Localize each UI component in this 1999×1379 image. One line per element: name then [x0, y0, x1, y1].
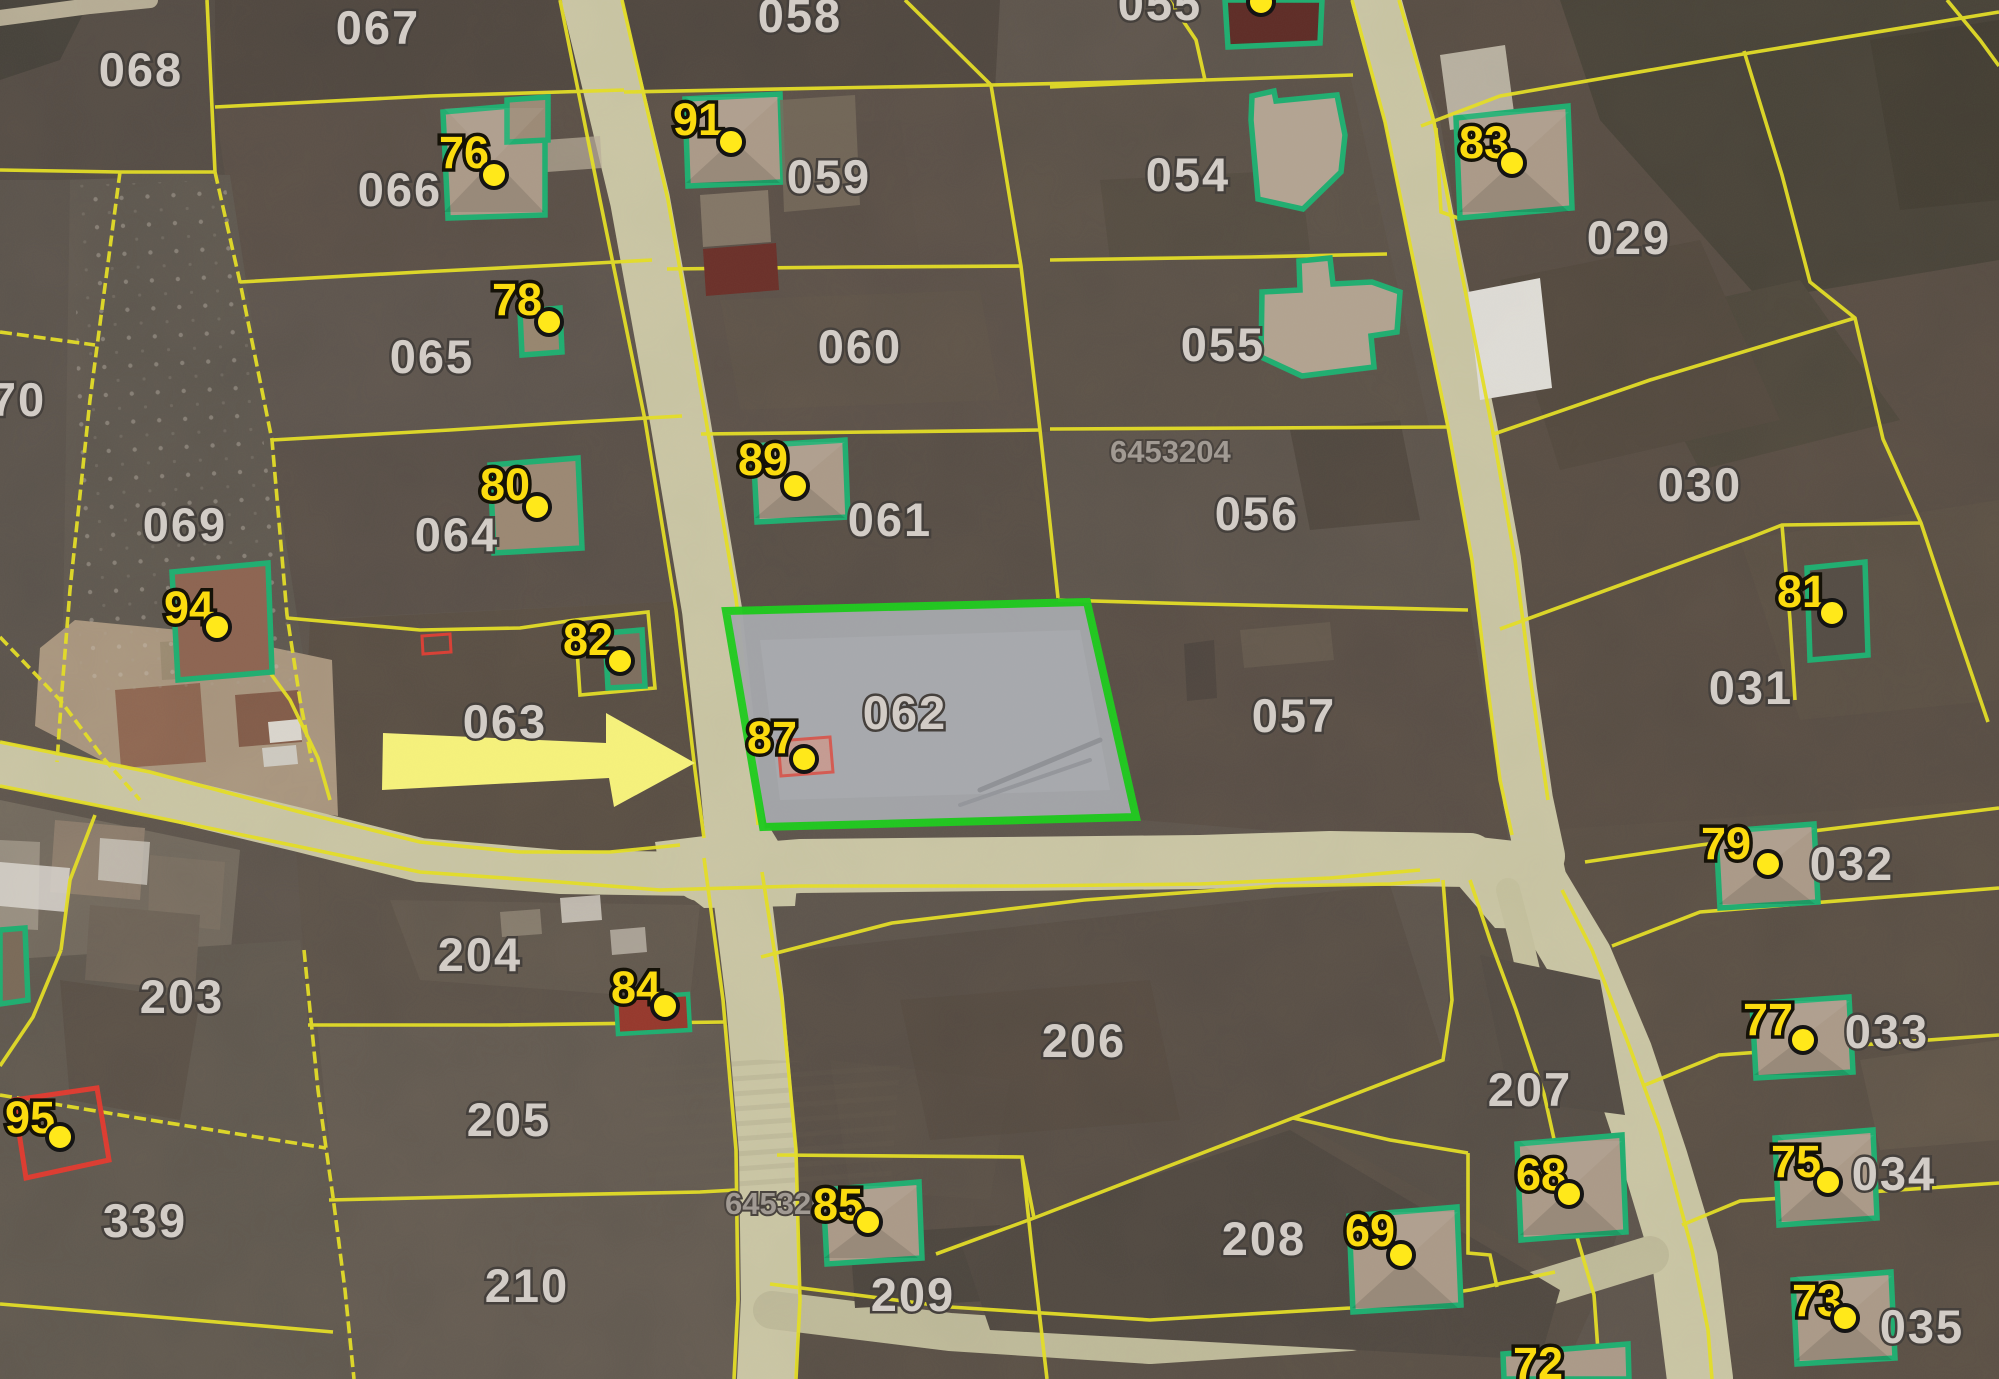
svg-text:209: 209	[871, 1268, 955, 1321]
svg-text:210: 210	[485, 1259, 569, 1312]
svg-text:069: 069	[143, 498, 227, 551]
svg-text:065: 065	[390, 330, 474, 383]
svg-text:034: 034	[1852, 1147, 1936, 1200]
svg-text:339: 339	[103, 1194, 187, 1247]
svg-text:056: 056	[1215, 487, 1299, 540]
svg-text:203: 203	[140, 970, 224, 1023]
svg-text:89: 89	[738, 434, 788, 485]
svg-text:6453204: 6453204	[1110, 434, 1231, 469]
svg-text:058: 058	[758, 0, 842, 42]
svg-text:060: 060	[818, 320, 902, 373]
svg-text:79: 79	[1701, 818, 1751, 869]
svg-text:207: 207	[1488, 1063, 1572, 1116]
svg-text:208: 208	[1222, 1212, 1306, 1265]
svg-text:067: 067	[336, 1, 420, 54]
svg-text:030: 030	[1658, 458, 1742, 511]
svg-text:035: 035	[1880, 1300, 1964, 1353]
svg-text:78: 78	[492, 274, 542, 325]
svg-text:057: 057	[1252, 689, 1336, 742]
svg-text:70: 70	[0, 373, 46, 426]
svg-text:206: 206	[1042, 1014, 1126, 1067]
svg-text:69: 69	[1345, 1205, 1395, 1256]
svg-text:91: 91	[673, 94, 723, 145]
svg-text:062: 062	[863, 686, 947, 739]
svg-text:031: 031	[1709, 661, 1793, 714]
svg-text:068: 068	[99, 43, 183, 96]
svg-text:054: 054	[1146, 148, 1230, 201]
svg-text:80: 80	[480, 459, 530, 510]
svg-text:204: 204	[438, 928, 522, 981]
svg-text:033: 033	[1845, 1005, 1929, 1058]
svg-text:061: 061	[848, 493, 932, 546]
svg-text:055: 055	[1181, 318, 1265, 371]
svg-text:059: 059	[787, 150, 871, 203]
svg-text:029: 029	[1587, 211, 1671, 264]
svg-text:032: 032	[1810, 837, 1894, 890]
svg-text:066: 066	[358, 163, 442, 216]
svg-text:205: 205	[467, 1093, 551, 1146]
svg-text:064: 064	[415, 508, 499, 561]
svg-text:055: 055	[1118, 0, 1202, 30]
svg-text:063: 063	[463, 695, 547, 748]
svg-text:72: 72	[1513, 1338, 1563, 1379]
svg-text:77: 77	[1743, 994, 1793, 1045]
